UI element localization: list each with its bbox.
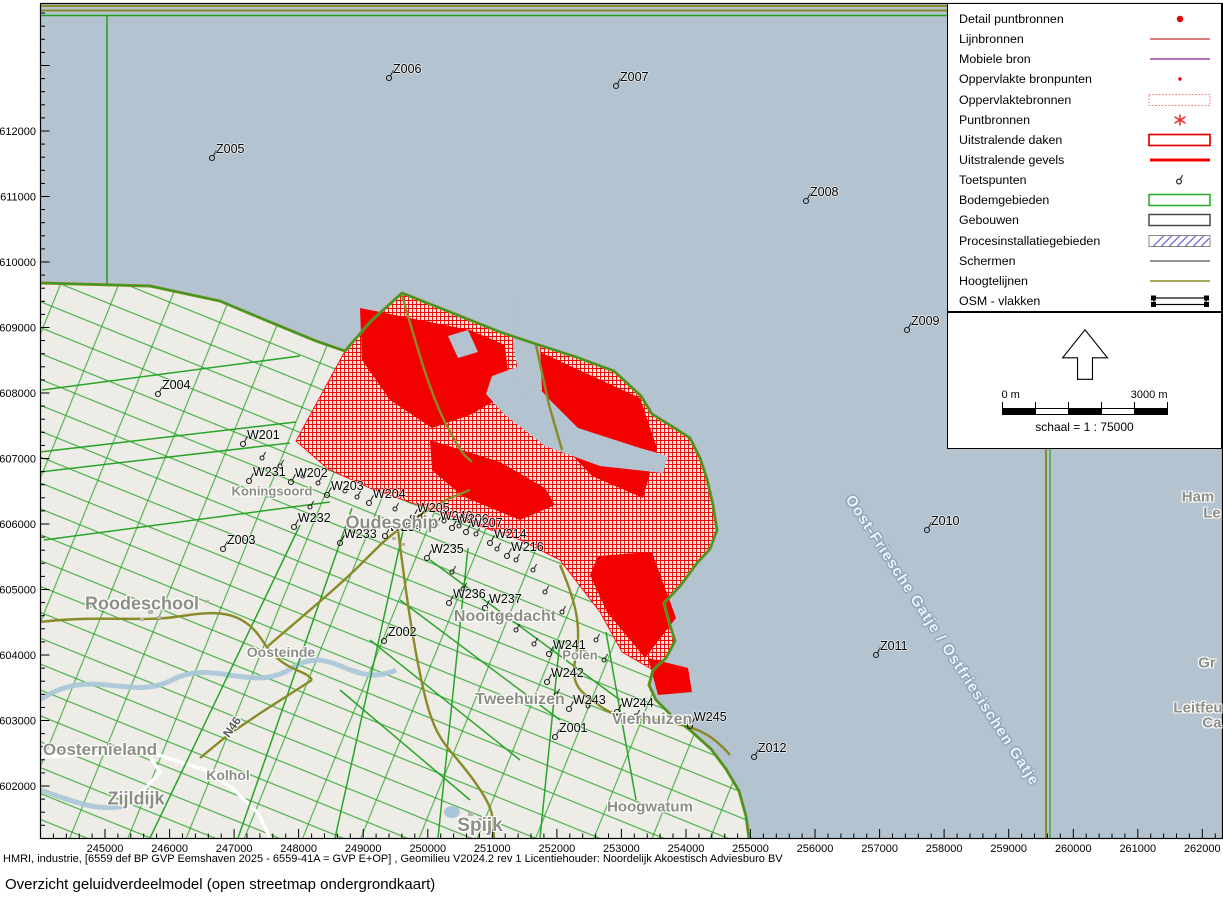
rect-dotted-red-icon <box>1147 92 1213 108</box>
legend-item-label: Bodemgebieden <box>959 193 1147 207</box>
asterisk-red-icon <box>1147 112 1213 128</box>
legend-item-rect-hatched-blue: Procesinstallatiegebieden <box>948 231 1221 251</box>
rect-osm-icon <box>1147 293 1213 309</box>
svg-text:259000: 259000 <box>990 843 1027 855</box>
svg-text:257000: 257000 <box>861 843 898 855</box>
legend-item-rect-dotted-red: Oppervlaktebronnen <box>948 90 1221 110</box>
svg-text:606000: 606000 <box>0 519 36 531</box>
legend-item-line-gray: Schermen <box>948 251 1221 271</box>
legend-item-label: Uitstralende daken <box>959 133 1147 147</box>
svg-text:261000: 261000 <box>1119 843 1156 855</box>
scale-left-label: 0 m <box>1002 389 1020 401</box>
legend-item-label: Hoogtelijnen <box>959 274 1147 288</box>
rect-gray-icon <box>1147 212 1213 228</box>
legend-item-line-red-thick: Uitstralende gevels <box>948 150 1221 170</box>
line-gray-icon <box>1147 253 1213 269</box>
legend-item-rect-gray: Gebouwen <box>948 210 1221 230</box>
svg-text:258000: 258000 <box>926 843 963 855</box>
legend-item-label: OSM - vlakken <box>959 294 1147 308</box>
legend-item-label: Toetspunten <box>959 173 1147 187</box>
line-red-icon <box>1147 31 1213 47</box>
legend-item-label: Oppervlakte bronpunten <box>959 72 1147 86</box>
toetspunt-icon <box>1147 172 1213 188</box>
svg-text:612000: 612000 <box>0 126 36 138</box>
legend-item-label: Procesinstallatiegebieden <box>959 234 1147 248</box>
svg-text:256000: 256000 <box>797 843 834 855</box>
legend-item-rect-osm: OSM - vlakken <box>948 291 1221 311</box>
scale-bar-ticks <box>1002 402 1168 408</box>
svg-text:610000: 610000 <box>0 257 36 269</box>
svg-text:611000: 611000 <box>0 192 36 204</box>
legend-item-line-purple: Mobiele bron <box>948 49 1221 69</box>
svg-text:608000: 608000 <box>0 388 36 400</box>
svg-text:607000: 607000 <box>0 454 36 466</box>
geomilieu-map-view: 2450002460002470002480002490002500002510… <box>0 0 1223 899</box>
line-olive-icon <box>1147 273 1213 289</box>
svg-text:604000: 604000 <box>0 650 36 662</box>
attribution-line: HMRI, industrie, [6559 def BP GVP Eemsha… <box>3 853 783 865</box>
page-title: Overzicht geluidverdeelmodel (open stree… <box>5 876 435 893</box>
dot-red-icon <box>1147 11 1213 27</box>
legend-item-rect-red: Uitstralende daken <box>948 130 1221 150</box>
svg-text:602000: 602000 <box>0 781 36 793</box>
scale-bar-segments <box>1002 408 1168 415</box>
legend-panel: Detail puntbronnenLijnbronnenMobiele bro… <box>947 3 1222 312</box>
svg-text:260000: 260000 <box>1055 843 1092 855</box>
legend-item-label: Puntbronnen <box>959 113 1147 127</box>
legend-item-label: Oppervlaktebronnen <box>959 93 1147 107</box>
legend-item-dot-red: Detail puntbronnen <box>948 9 1221 29</box>
legend-item-line-olive: Hoogtelijnen <box>948 271 1221 291</box>
compass-scale-panel: 0 m 3000 m schaal = 1 : 75000 <box>947 312 1222 449</box>
svg-text:603000: 603000 <box>0 716 36 728</box>
legend-item-toetspunt: Toetspunten <box>948 170 1221 190</box>
legend-item-label: Gebouwen <box>959 213 1147 227</box>
svg-text:609000: 609000 <box>0 323 36 335</box>
scale-bar: 0 m 3000 m <box>1002 389 1168 415</box>
rect-red-icon <box>1147 132 1213 148</box>
legend-item-dot-red-small: Oppervlakte bronpunten <box>948 69 1221 89</box>
svg-text:605000: 605000 <box>0 585 36 597</box>
line-purple-icon <box>1147 51 1213 67</box>
dot-red-small-icon <box>1147 71 1213 87</box>
svg-text:262000: 262000 <box>1184 843 1221 855</box>
legend-item-label: Uitstralende gevels <box>959 153 1147 167</box>
scale-caption: schaal = 1 : 75000 <box>1035 420 1133 434</box>
line-red-thick-icon <box>1147 152 1213 168</box>
legend-item-label: Detail puntbronnen <box>959 12 1147 26</box>
legend-item-asterisk-red: Puntbronnen <box>948 110 1221 130</box>
scale-right-label: 3000 m <box>1131 389 1168 401</box>
legend-item-rect-green: Bodemgebieden <box>948 190 1221 210</box>
north-arrow-icon <box>1057 327 1113 383</box>
rect-green-icon <box>1147 192 1213 208</box>
legend-item-label: Mobiele bron <box>959 52 1147 66</box>
legend-item-line-red: Lijnbronnen <box>948 29 1221 49</box>
rect-hatched-blue-icon <box>1147 233 1213 249</box>
legend-item-label: Lijnbronnen <box>959 32 1147 46</box>
legend-rows: Detail puntbronnenLijnbronnenMobiele bro… <box>948 9 1221 311</box>
pond <box>444 806 460 818</box>
legend-item-label: Schermen <box>959 254 1147 268</box>
